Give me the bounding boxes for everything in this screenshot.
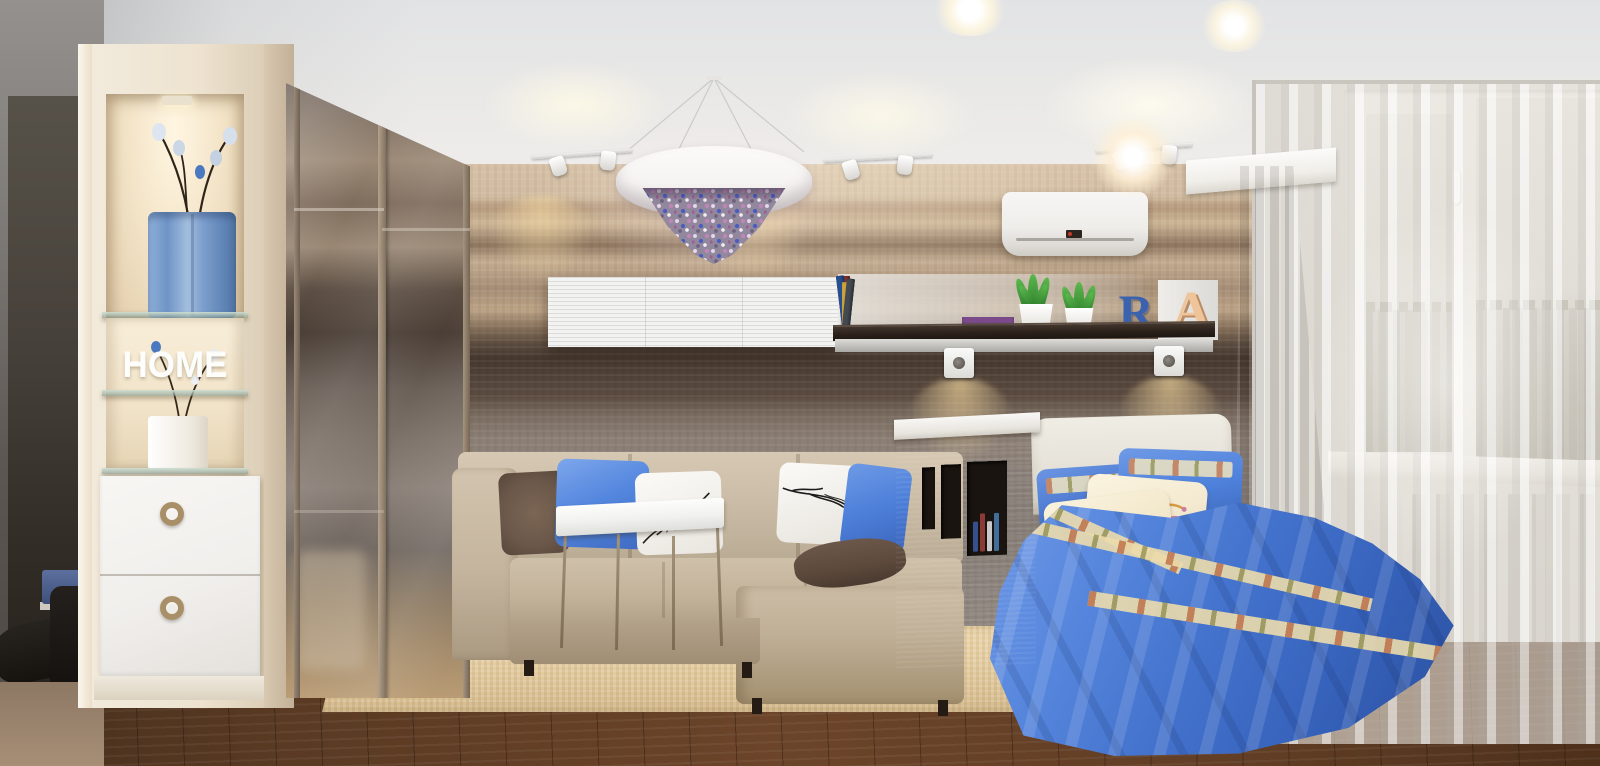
unit-plinth (94, 676, 266, 700)
cabinet-seam (742, 277, 743, 347)
glass-shelf (102, 468, 248, 474)
shelf-book-stack (962, 286, 1014, 326)
home-sign: HOME (106, 346, 244, 386)
partition-niche (967, 461, 1007, 556)
sofa-reflection (296, 550, 366, 670)
niche-book (973, 522, 978, 552)
partition-niche (922, 467, 935, 529)
recessed-light (1198, 0, 1270, 52)
partition-body (896, 430, 1036, 669)
curtain-rod (1256, 80, 1600, 84)
sofa-leg (752, 698, 762, 714)
blue-duvet (990, 500, 1468, 756)
table-leg (716, 526, 723, 646)
drawer-ring-handle (160, 596, 184, 620)
succulent-leaves (1014, 276, 1058, 308)
door-crossbar (294, 208, 384, 211)
track-spot-icon (600, 150, 617, 170)
floating-white-cabinet (548, 277, 840, 347)
wall-spotlight (944, 348, 974, 378)
glass-shelf (102, 390, 248, 396)
vase-seam (191, 214, 194, 316)
niche-book (994, 513, 999, 551)
ac-display (1066, 230, 1082, 238)
display-unit: HOME (78, 44, 294, 708)
door-crossbar (294, 510, 384, 513)
niche-book (980, 513, 985, 551)
door-crossbar (382, 228, 470, 231)
door-frame (294, 80, 300, 698)
wall-spotlight (1154, 346, 1184, 376)
door-frame (378, 90, 386, 708)
cubby-partition-wall (894, 414, 1040, 666)
chandelier (598, 70, 828, 260)
table-leg (672, 536, 675, 650)
succulent-leaves (1060, 284, 1098, 312)
drawer-divider (100, 574, 260, 576)
sofa-leg (524, 660, 534, 676)
niche-spotlight (162, 96, 192, 105)
unit-lit-edge (78, 44, 92, 708)
sofa-leg (938, 700, 948, 716)
air-conditioner (1002, 192, 1148, 256)
apartment-render: HOME R A (0, 0, 1600, 766)
niche-book (987, 521, 992, 551)
bed (988, 404, 1554, 756)
coffee-table (552, 494, 732, 654)
ac-vent (1016, 238, 1134, 241)
table-leg (615, 534, 620, 650)
partition-niche (941, 464, 961, 539)
mirrored-wardrobe (286, 80, 470, 698)
pillow-floral-band (1128, 458, 1233, 478)
table-leg (560, 530, 567, 648)
chandelier-wires (614, 76, 814, 156)
spotlight-flare (1088, 118, 1178, 196)
cabinet-seam (645, 277, 646, 347)
white-vase (148, 416, 208, 470)
shelf-books (842, 272, 960, 326)
sofa-leg (742, 662, 752, 678)
table-top (556, 498, 724, 537)
drawer-ring-handle (160, 502, 184, 526)
